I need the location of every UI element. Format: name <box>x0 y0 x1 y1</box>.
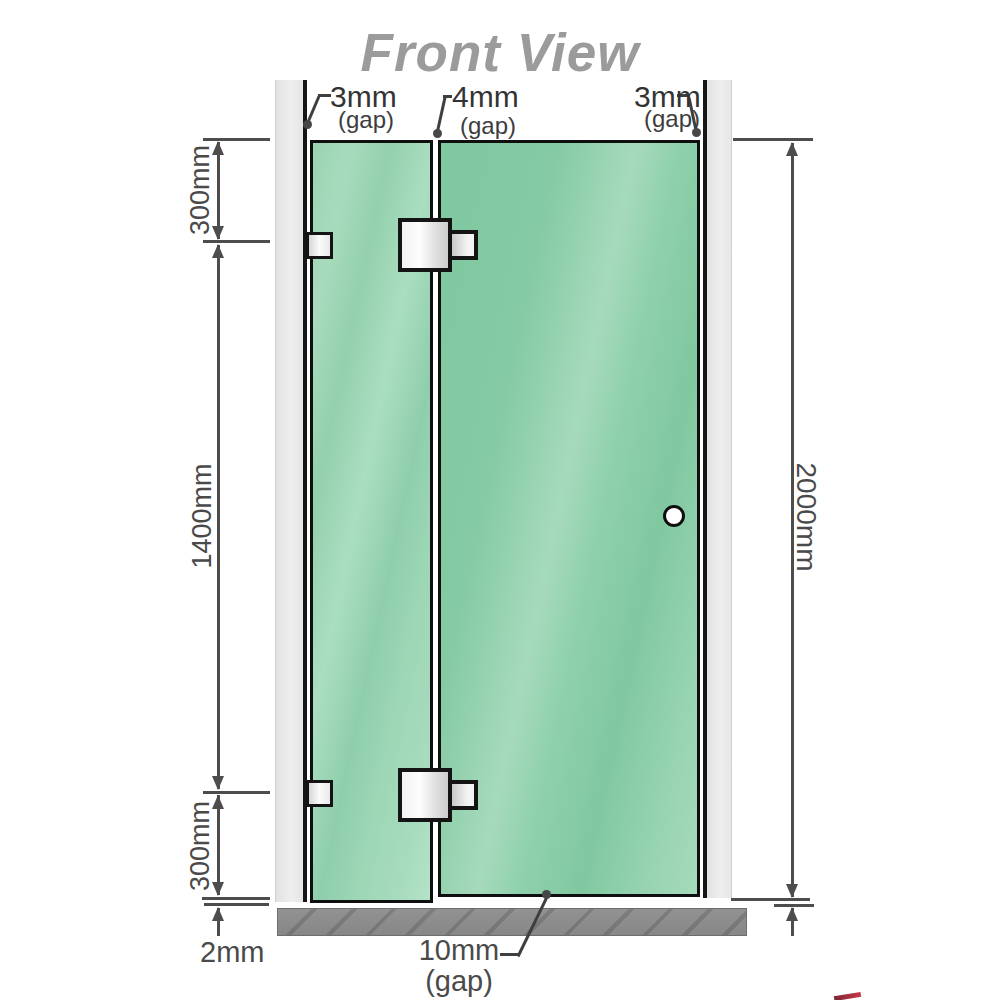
door-handle-knob <box>663 505 685 527</box>
dim-tick-hinge-bottom <box>203 791 270 794</box>
dim-tick-floor-left <box>204 903 269 906</box>
leader-left-gap-dot <box>303 120 312 129</box>
dim-tick-glass-bottom-right <box>731 898 810 901</box>
diagram-title: Front View <box>0 22 1000 83</box>
dim-tick-top-right <box>733 138 813 141</box>
dim-tick-hinge-top <box>203 240 270 243</box>
logo-fragment <box>834 992 861 1000</box>
dim-arrow <box>786 907 798 921</box>
floor-base <box>277 908 747 936</box>
leader-middle-gap-dot <box>433 129 442 138</box>
top-wall-bracket <box>306 232 333 259</box>
bottom-hinge-tab <box>448 780 478 810</box>
top-hinge-plate <box>398 218 452 272</box>
right-wall-channel <box>703 80 732 898</box>
left-wall-channel <box>275 80 307 902</box>
front-view-diagram: Front View 300mm 1400mm 300mm 2000mm 2mm… <box>0 0 1000 1000</box>
dim-line-300-bottom <box>217 795 220 895</box>
dim-tick-glass-bottom-left <box>202 897 270 900</box>
bottom-gap-label: 10mm (gap) <box>404 934 514 998</box>
gap-label-middle-unit: (gap) <box>460 112 516 140</box>
bottom-gap-value: 10mm <box>404 934 514 967</box>
dim-label-300-bottom: 300mm <box>185 801 216 891</box>
dim-arrow <box>212 907 224 921</box>
dim-arrow <box>786 142 798 156</box>
bottom-wall-bracket <box>306 780 333 807</box>
dim-label-1400: 1400mm <box>187 463 218 568</box>
dim-label-300-top: 300mm <box>185 145 216 235</box>
dim-arrow <box>212 244 224 258</box>
dim-label-2mm: 2mm <box>200 936 264 969</box>
gap-label-left-unit: (gap) <box>338 106 394 134</box>
dim-arrow <box>786 884 798 898</box>
gap-label-right-unit: (gap) <box>644 105 700 133</box>
leader-bottom-gap-dot <box>542 890 551 899</box>
dim-line-300-top <box>217 142 220 239</box>
gap-label-middle-value: 4mm <box>452 80 519 114</box>
dim-arrow <box>212 776 224 790</box>
bottom-gap-unit: (gap) <box>404 965 514 998</box>
dim-label-2000: 2000mm <box>790 463 822 572</box>
leader-right-gap-dot <box>692 128 701 137</box>
top-hinge-tab <box>448 230 478 260</box>
bottom-hinge-plate <box>398 768 452 822</box>
